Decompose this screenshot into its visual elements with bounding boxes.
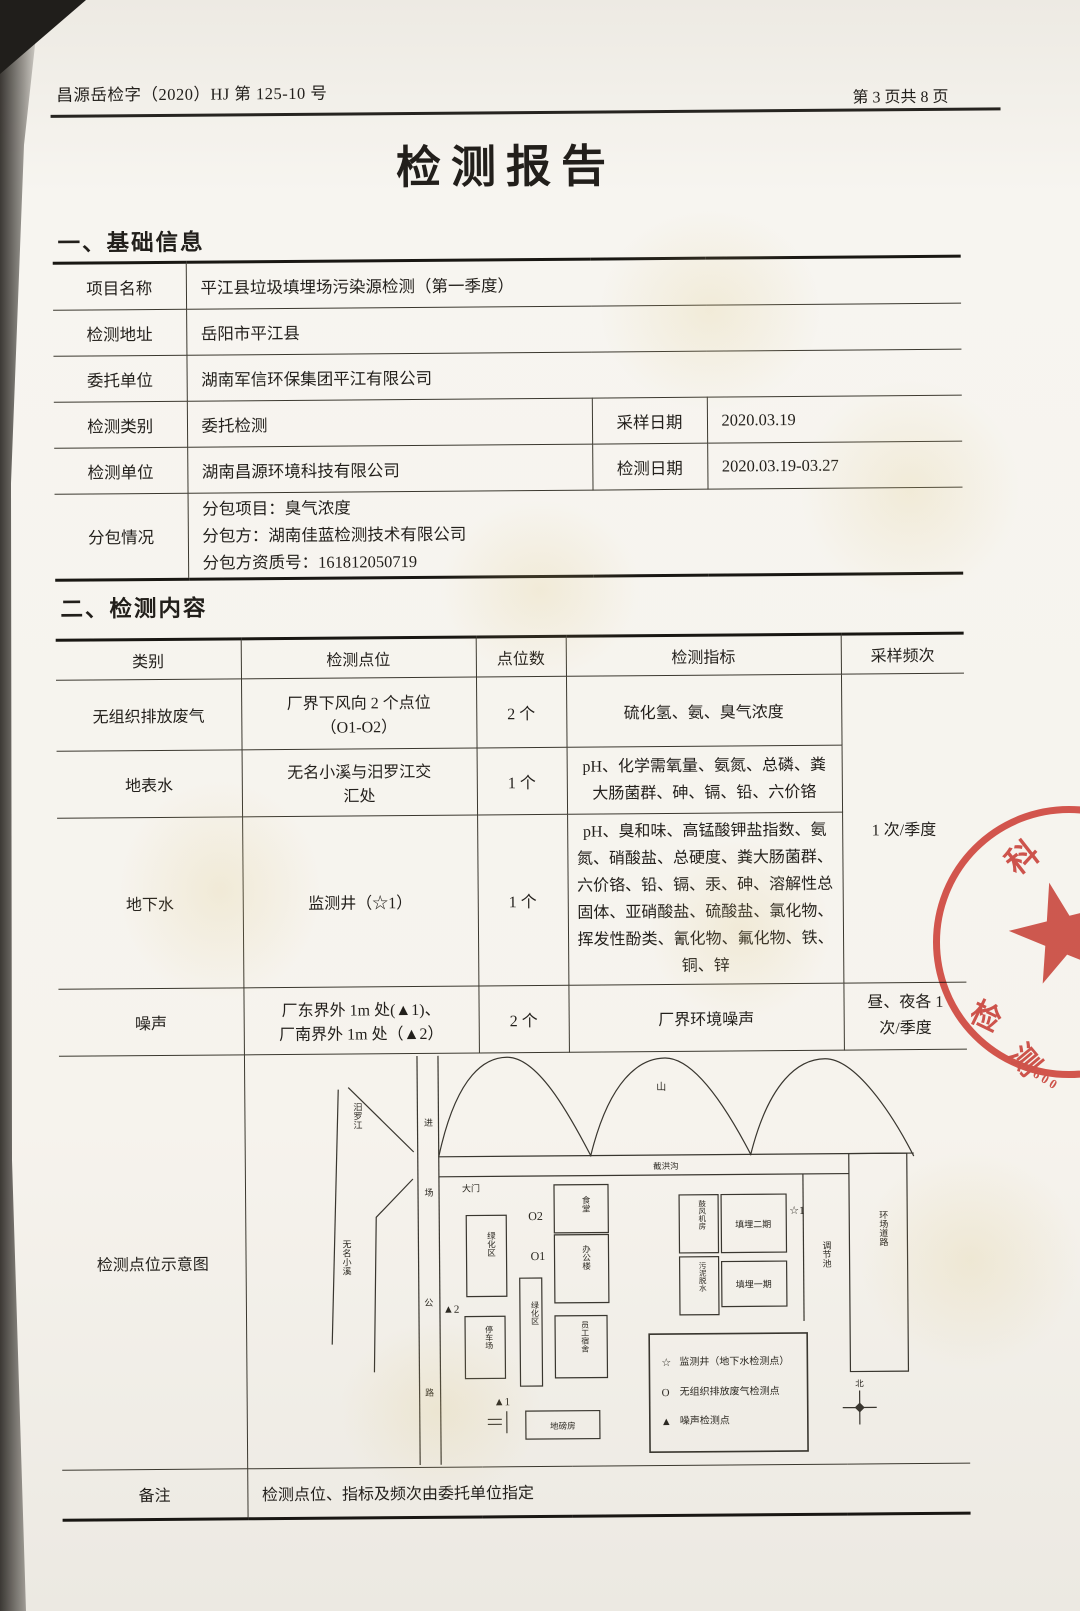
groundwater-category: 地下水 [57,817,243,989]
landfill-phase2-label: 填埋二期 [735,1218,771,1229]
sampling-date-label: 采样日期 [592,397,707,444]
row-address: 检测地址 岳阳市平江县 [53,303,961,356]
report-title: 检测报告 [52,127,960,199]
office-label: 办公楼 [581,1244,591,1271]
legend-label-gas: 无组织排放废气检测点 [679,1384,779,1398]
row-agency-testing: 检测单位 湖南昌源环境科技有限公司 检测日期 2020.03.19-03.27 [54,441,962,494]
legend-label-noise: 噪声检测点 [679,1414,729,1427]
noise-indicators: 厂界环境噪声 [568,983,844,1052]
row-type-sampling: 检测类别 委托检测 采样日期 2020.03.19 [54,395,962,448]
content-header-row: 类别 检测点位 点位数 检测指标 采样频次 [56,633,964,680]
section-basic-info-heading: 一、基础信息 [57,225,204,258]
dorm-label: 员工宿舍 [580,1321,589,1354]
creek-east-bank [372,1179,414,1372]
col-points: 检测点位 [241,637,476,679]
sludge-label: 污泥脱水 [697,1261,706,1292]
gas-indicators: 硫化氢、氨、臭气浓度 [566,674,842,747]
mountain-outline [437,1054,913,1160]
gas-category: 无组织排放废气 [56,679,242,751]
subcontract-value: 分包项目：臭气浓度 分包方：湖南佳蓝检测技术有限公司 分包方资质号：161812… [188,487,964,579]
canteen-label: 食堂 [581,1195,591,1213]
legend-symbol-well: ☆ [661,1357,671,1369]
gas-count: 2 个 [476,676,567,748]
surface-count: 1 个 [477,747,568,815]
surface-indicators: pH、化学需氧量、氨氮、总磷、粪大肠菌群、砷、镉、铅、六价铬 [567,745,843,814]
channel-top-line [438,1153,913,1157]
channel-label: 截洪沟 [653,1161,679,1171]
marker-o1: O1 [530,1249,545,1263]
project-label: 项目名称 [53,262,186,310]
row-diagram: 检测点位示意图 进 场 公 路 汨罗江 [59,1049,970,1470]
subcontract-line3: 分包方资质号：161812050719 [202,543,957,576]
marker-noise2: ▲2 [442,1304,458,1316]
green-area-2-label: 绿化区 [530,1301,539,1325]
paper-sheet: 昌源岳检字（2020）HJ 第 125-10 号 第 3 页共 8 页 检测报告… [0,0,1080,1611]
pond-boundary [802,1174,803,1321]
legend-symbol-noise: ▲ [660,1416,671,1428]
weighbridge-label: 地磅房 [550,1421,576,1431]
row-client: 委托单位 湖南军信环保集团平江有限公司 [53,349,961,402]
parking-label: 停车场 [484,1324,493,1350]
channel-bottom-line [438,1174,848,1177]
address-label: 检测地址 [53,309,186,356]
type-label: 检测类别 [54,401,187,448]
col-frequency: 采样频次 [841,633,964,674]
mountain-label: 山 [656,1081,666,1093]
creek-label: 无名小溪 [341,1239,351,1276]
content-table: 类别 检测点位 点位数 检测指标 采样频次 无组织排放废气 厂界下风向 2 个点… [56,632,971,1522]
row-remark: 备注 检测点位、指标及频次由委托单位指定 [62,1463,970,1520]
road-char-2: 场 [424,1188,433,1198]
client-value: 湖南军信环保集团平江有限公司 [186,349,961,401]
row-surface-water: 地表水 无名小溪与汨罗江交 汇处 1 个 pH、化学需氧量、氨氮、总磷、粪大肠菌… [57,744,965,818]
groundwater-points: 监测井（☆1） [242,815,478,988]
compass-center [854,1402,864,1412]
road-line-west [416,1056,419,1465]
testing-date-value: 2020.03.19-03.27 [707,441,962,489]
legend-symbol-gas: O [661,1387,669,1399]
compass-north-label: 北 [855,1378,864,1388]
groundwater-indicators: pH、臭和味、高锰酸钾盐指数、氨氮、硝酸盐、总硬度、粪大肠菌群、六价铬、铅、镉、… [567,812,843,985]
noise-category: 噪声 [58,988,244,1056]
road-char-1: 进 [423,1118,432,1128]
remark-label: 备注 [62,1469,247,1520]
gate-label: 大门 [461,1182,479,1193]
diagram-row-label: 检测点位示意图 [59,1055,247,1470]
page-indicator: 第 3 页共 8 页 [852,83,948,108]
row-groundwater: 地下水 监测井（☆1） 1 个 pH、臭和味、高锰酸钾盐指数、氨氮、硝酸盐、总硬… [57,811,966,989]
river-label: 汨罗江 [352,1102,362,1130]
client-label: 委托单位 [53,355,186,402]
gas-points: 厂界下风向 2 个点位 （O1-O2） [241,677,477,750]
row-gas: 无组织排放废气 厂界下风向 2 个点位 （O1-O2） 2 个 硫化氢、氨、臭气… [56,673,965,751]
ring-road-area [848,1153,908,1371]
subcontract-label: 分包情况 [55,493,189,580]
pond-label: 调节池 [821,1241,831,1268]
creek-west-bank [330,1090,340,1345]
noise-points: 厂东界外 1m 处(▲1)、 厂南界外 1m 处（▲2） [243,986,479,1055]
green-area-2 [519,1278,542,1386]
testing-date-label: 检测日期 [592,443,707,490]
agency-value: 湖南昌源环境科技有限公司 [187,444,592,493]
basic-info-table: 项目名称 平江县垃圾填埋场污染源检测（第一季度） 检测地址 岳阳市平江县 委托单… [53,255,964,582]
address-value: 岳阳市平江县 [186,303,961,355]
road-char-4: 路 [425,1387,434,1398]
scanned-report-page: 昌源岳检字（2020）HJ 第 125-10 号 第 3 页共 8 页 检测报告… [0,0,1080,1611]
ring-road-label: 环场道路 [878,1210,888,1247]
marker-o2: O2 [528,1209,543,1223]
marker-noise1: ▲1 [493,1396,509,1408]
groundwater-count: 1 个 [477,814,568,986]
road-char-3: 公 [424,1298,433,1308]
row-subcontract: 分包情况 分包项目：臭气浓度 分包方：湖南佳蓝检测技术有限公司 分包方资质号：1… [55,487,964,580]
blower-label: 鼓风机房 [697,1198,707,1231]
site-map-diagram: 进 场 公 路 汨罗江 无名小溪 山 [244,1050,970,1469]
legend-label-well: 监测井（地下水检测点） [679,1354,789,1368]
marker-well: ☆1 [789,1205,804,1217]
row-project: 项目名称 平江县垃圾填埋场污染源检测（第一季度） [53,256,961,310]
gate-glyph [487,1411,506,1433]
col-indicators: 检测指标 [566,634,841,676]
agency-label: 检测单位 [54,447,187,494]
col-category: 类别 [56,639,241,680]
col-count: 点位数 [476,636,566,677]
surface-points: 无名小溪与汨罗江交 汇处 [242,748,478,817]
header-rule [51,107,1001,117]
sampling-date-value: 2020.03.19 [707,395,962,443]
section-content-heading: 二、检测内容 [60,591,207,624]
document-number: 昌源岳检字（2020）HJ 第 125-10 号 [56,80,327,106]
noise-count: 2 个 [478,985,569,1053]
road-line-east [437,1056,440,1465]
remark-value: 检测点位、指标及频次由委托单位指定 [247,1463,970,1519]
type-value: 委托检测 [187,398,592,447]
surface-category: 地表水 [57,750,243,818]
diagram-cell: 进 场 公 路 汨罗江 无名小溪 山 [244,1049,970,1469]
row-noise: 噪声 厂东界外 1m 处(▲1)、 厂南界外 1m 处（▲2） 2 个 厂界环境… [58,982,966,1056]
landfill-phase1-label: 填埋一期 [735,1278,771,1289]
project-value: 平江县垃圾填埋场污染源检测（第一季度） [186,256,961,309]
green-area-1-label: 绿化区 [486,1231,496,1257]
compass-icon: 北 [842,1378,876,1424]
